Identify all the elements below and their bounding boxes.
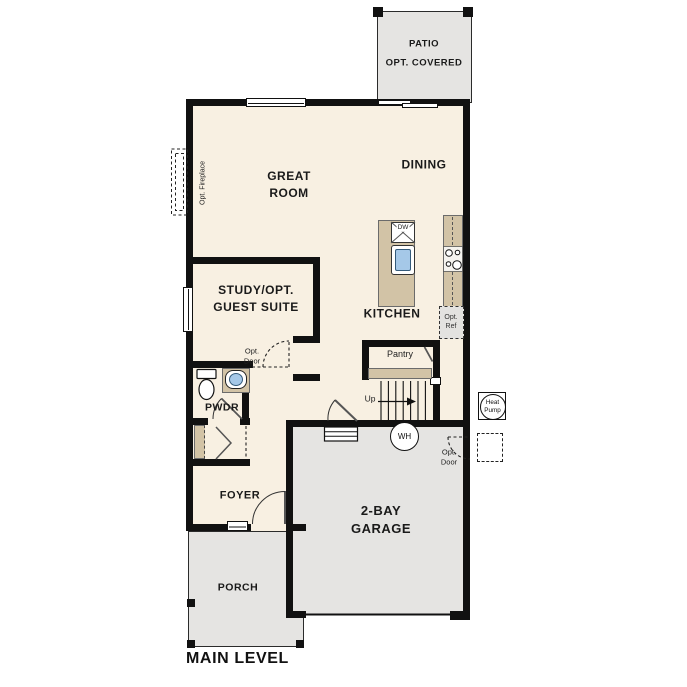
foyer-window bbox=[227, 521, 248, 531]
wall bbox=[286, 420, 470, 427]
wall bbox=[193, 257, 320, 264]
counter-centerline bbox=[452, 217, 453, 305]
wall bbox=[313, 257, 320, 343]
porch-post bbox=[187, 640, 195, 648]
wall bbox=[450, 611, 470, 620]
stairs-up-label: Up bbox=[365, 393, 376, 404]
opt-door-garage-label: Opt. Door bbox=[441, 447, 457, 467]
patio-note-label: OPT. COVERED bbox=[386, 56, 463, 69]
heat-pump-circle: Heat Pump bbox=[480, 394, 506, 420]
wall bbox=[293, 374, 320, 381]
foyer-floor bbox=[193, 427, 286, 524]
closet-shelf bbox=[194, 425, 205, 459]
water-heater: WH bbox=[390, 422, 419, 451]
porch-post bbox=[187, 599, 195, 607]
sliding-door-panel bbox=[402, 103, 438, 108]
porch-label: PORCH bbox=[218, 581, 258, 596]
patio-label: PATIO bbox=[409, 37, 439, 50]
pantry-label: Pantry bbox=[387, 349, 413, 361]
heat-pump-label: Heat bbox=[486, 399, 499, 406]
wall bbox=[362, 340, 440, 347]
plan-title: MAIN LEVEL bbox=[186, 650, 289, 668]
opt-fireplace-label: Opt. Fireplace bbox=[198, 161, 207, 205]
powder-door-opening bbox=[208, 418, 240, 425]
powder-room-label: PWDR bbox=[205, 401, 239, 416]
garage-label: 2-BAY GARAGE bbox=[351, 502, 411, 538]
pantry-shelf bbox=[368, 368, 432, 379]
dishwasher-label: DW bbox=[397, 224, 410, 232]
powder-sink-basin bbox=[229, 373, 243, 386]
dining-label: DINING bbox=[402, 157, 447, 174]
study-label: STUDY/OPT. GUEST SUITE bbox=[213, 282, 299, 316]
wall bbox=[191, 459, 250, 466]
front-door-opening bbox=[251, 524, 286, 531]
wall bbox=[286, 420, 293, 618]
wall bbox=[463, 99, 470, 620]
opt-ref-label: Opt. Ref bbox=[444, 313, 457, 331]
kitchen-wall-counter bbox=[443, 215, 463, 307]
great-room-label: GREAT ROOM bbox=[267, 168, 311, 202]
great-room-window bbox=[246, 98, 306, 107]
porch-post bbox=[296, 640, 304, 648]
opt-door-study-label: Opt. Door bbox=[244, 346, 260, 366]
wall bbox=[242, 393, 249, 420]
kitchen-label: KITCHEN bbox=[364, 306, 421, 323]
island-sink-basin bbox=[395, 249, 411, 271]
foyer-label: FOYER bbox=[220, 488, 260, 503]
water-heater-label: WH bbox=[398, 432, 411, 441]
floor-plan: WH Heat Pump PATIO OPT. COVERED GREAT RO… bbox=[0, 0, 687, 687]
wall bbox=[286, 611, 306, 618]
patio-post bbox=[373, 7, 383, 17]
wall bbox=[293, 336, 320, 343]
patio-post bbox=[463, 7, 473, 17]
heat-pump: Heat Pump bbox=[478, 392, 506, 420]
heat-pump-label: Pump bbox=[484, 407, 500, 414]
heat-pump-pad bbox=[477, 433, 503, 462]
study-window bbox=[183, 287, 193, 332]
